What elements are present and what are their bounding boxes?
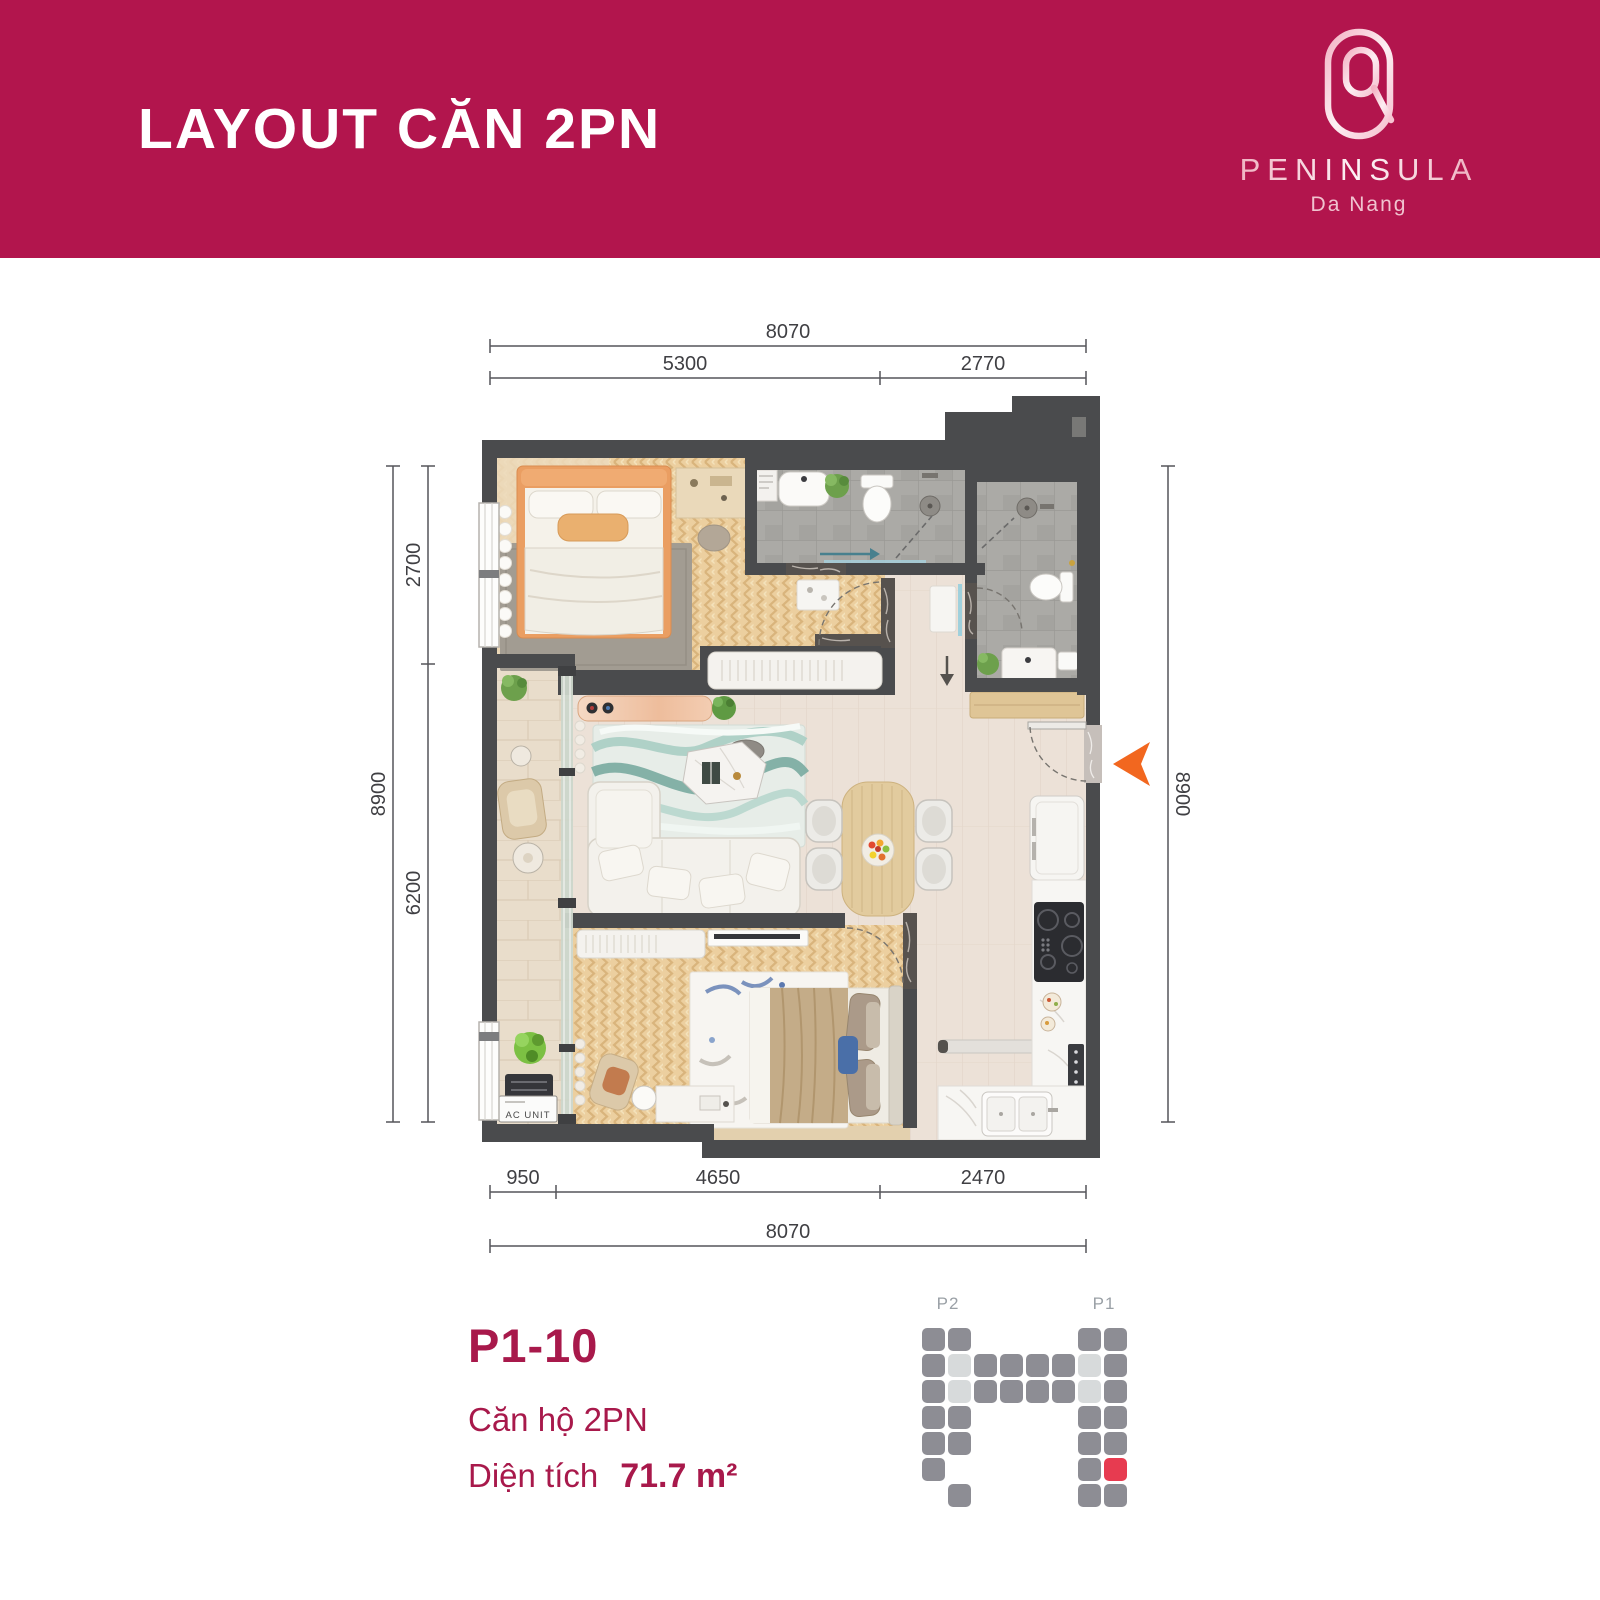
header-banner: LAYOUT CĂN 2PN PENINSULA Da Nang: [0, 0, 1600, 258]
desk-chair: [632, 1086, 656, 1110]
minimap-cell: [1104, 1328, 1127, 1351]
dim-right-total: 8900: [1171, 772, 1193, 817]
bench: [938, 1040, 1042, 1053]
minimap-cell: [1026, 1380, 1049, 1403]
minimap-cell: [1104, 1354, 1127, 1377]
minimap-cell-selected: [1104, 1458, 1127, 1481]
tower-label-p2: P2: [937, 1294, 960, 1314]
window: [479, 1022, 499, 1120]
minimap-cell: [948, 1406, 971, 1429]
dim-left-upper: 2700: [403, 543, 425, 588]
dim-bottom-mid: 4650: [696, 1167, 741, 1189]
minimap-cell: [1104, 1406, 1127, 1429]
door-glass: [958, 584, 962, 636]
window: [479, 503, 499, 647]
plant-icon: [501, 675, 527, 701]
minimap-cell: [1052, 1380, 1075, 1403]
minimap-cell: [974, 1380, 997, 1403]
cooktop: [1034, 902, 1084, 982]
minimap-cell: [922, 1328, 945, 1351]
ac-unit: AC UNIT: [499, 1074, 557, 1122]
brand-city: Da Nang: [1311, 193, 1408, 216]
minimap-cell: [1078, 1458, 1101, 1481]
minimap-cell: [922, 1458, 945, 1481]
minimap-cell: [1078, 1328, 1101, 1351]
tower-label-p1: P1: [1093, 1294, 1116, 1314]
minimap-cell: [1078, 1354, 1101, 1377]
unit-type: Căn hộ 2PN: [468, 1401, 737, 1439]
minimap-cell: [1078, 1484, 1101, 1507]
bed-2: [750, 986, 903, 1125]
toilet-icon: [1030, 572, 1073, 602]
ac-unit-label: AC UNIT: [506, 1110, 551, 1121]
minimap-cell: [1078, 1406, 1101, 1429]
minimap-cell: [948, 1354, 971, 1377]
master-bed: [517, 466, 671, 638]
dim-left-total: 8900: [368, 772, 390, 817]
minimap-cell: [948, 1380, 971, 1403]
area-value: 71.7 m²: [620, 1457, 737, 1495]
dim-bottom-right: 2470: [961, 1167, 1006, 1189]
minimap-cell: [948, 1328, 971, 1351]
dish: [1043, 993, 1061, 1011]
bath2-basin: [1002, 648, 1056, 682]
page-title: LAYOUT CĂN 2PN: [138, 96, 661, 162]
peninsula-monogram-icon: [1328, 32, 1391, 136]
minimap-cell: [948, 1484, 971, 1507]
corridor-cabinet: [708, 652, 882, 689]
brand-logo: PENINSULA Da Nang: [1225, 18, 1495, 243]
minimap-cell: [1052, 1354, 1075, 1377]
minimap-cell: [922, 1432, 945, 1455]
plant-icon: [712, 696, 736, 720]
toilet-icon: [861, 475, 893, 522]
minimap-cell: [1078, 1432, 1101, 1455]
dresser: [676, 468, 748, 518]
minimap-cell: [974, 1354, 997, 1377]
living-room: [575, 696, 805, 916]
fridge: [1030, 796, 1084, 880]
minimap-cell: [1104, 1432, 1127, 1455]
plant-icon: [977, 653, 999, 675]
minimap-cell: [922, 1380, 945, 1403]
entrance-arrow-icon: [1113, 742, 1150, 786]
minimap-cell: [922, 1354, 945, 1377]
unit-area: Diện tích71.7 m²: [468, 1457, 737, 1496]
minimap-cell: [948, 1432, 971, 1455]
dim-top-left: 5300: [663, 353, 708, 375]
dim-top-right: 2770: [961, 353, 1006, 375]
minimap-cell: [1104, 1484, 1127, 1507]
desk: [656, 1086, 734, 1122]
bath1-shelf: [756, 470, 777, 501]
unit-code: P1-10: [468, 1318, 737, 1373]
minimap-cell: [1026, 1354, 1049, 1377]
unit-info: P1-10 Căn hộ 2PN Diện tích71.7 m²: [468, 1318, 737, 1496]
plant-icon: [825, 474, 849, 498]
minimap-cell: [1078, 1380, 1101, 1403]
area-label: Diện tích: [468, 1457, 598, 1494]
dim-bottom-total: 8070: [766, 1221, 811, 1243]
minimap-cell: [922, 1406, 945, 1429]
minimap-cell: [1104, 1380, 1127, 1403]
dim-bottom-left: 950: [506, 1167, 539, 1189]
dim-top-total: 8070: [766, 321, 811, 343]
brand-name: PENINSULA: [1240, 152, 1479, 187]
sink: [982, 1092, 1058, 1136]
tv-console: [578, 696, 712, 721]
bath-mat: [930, 586, 956, 632]
side-table: [511, 746, 531, 766]
plant-icon: [514, 1032, 546, 1064]
minimap-cell: [1000, 1354, 1023, 1377]
floor-plan: AC UNIT: [360, 320, 1210, 1270]
minimap-cell: [1000, 1380, 1023, 1403]
stool: [698, 525, 730, 551]
dim-left-lower: 6200: [403, 871, 425, 916]
